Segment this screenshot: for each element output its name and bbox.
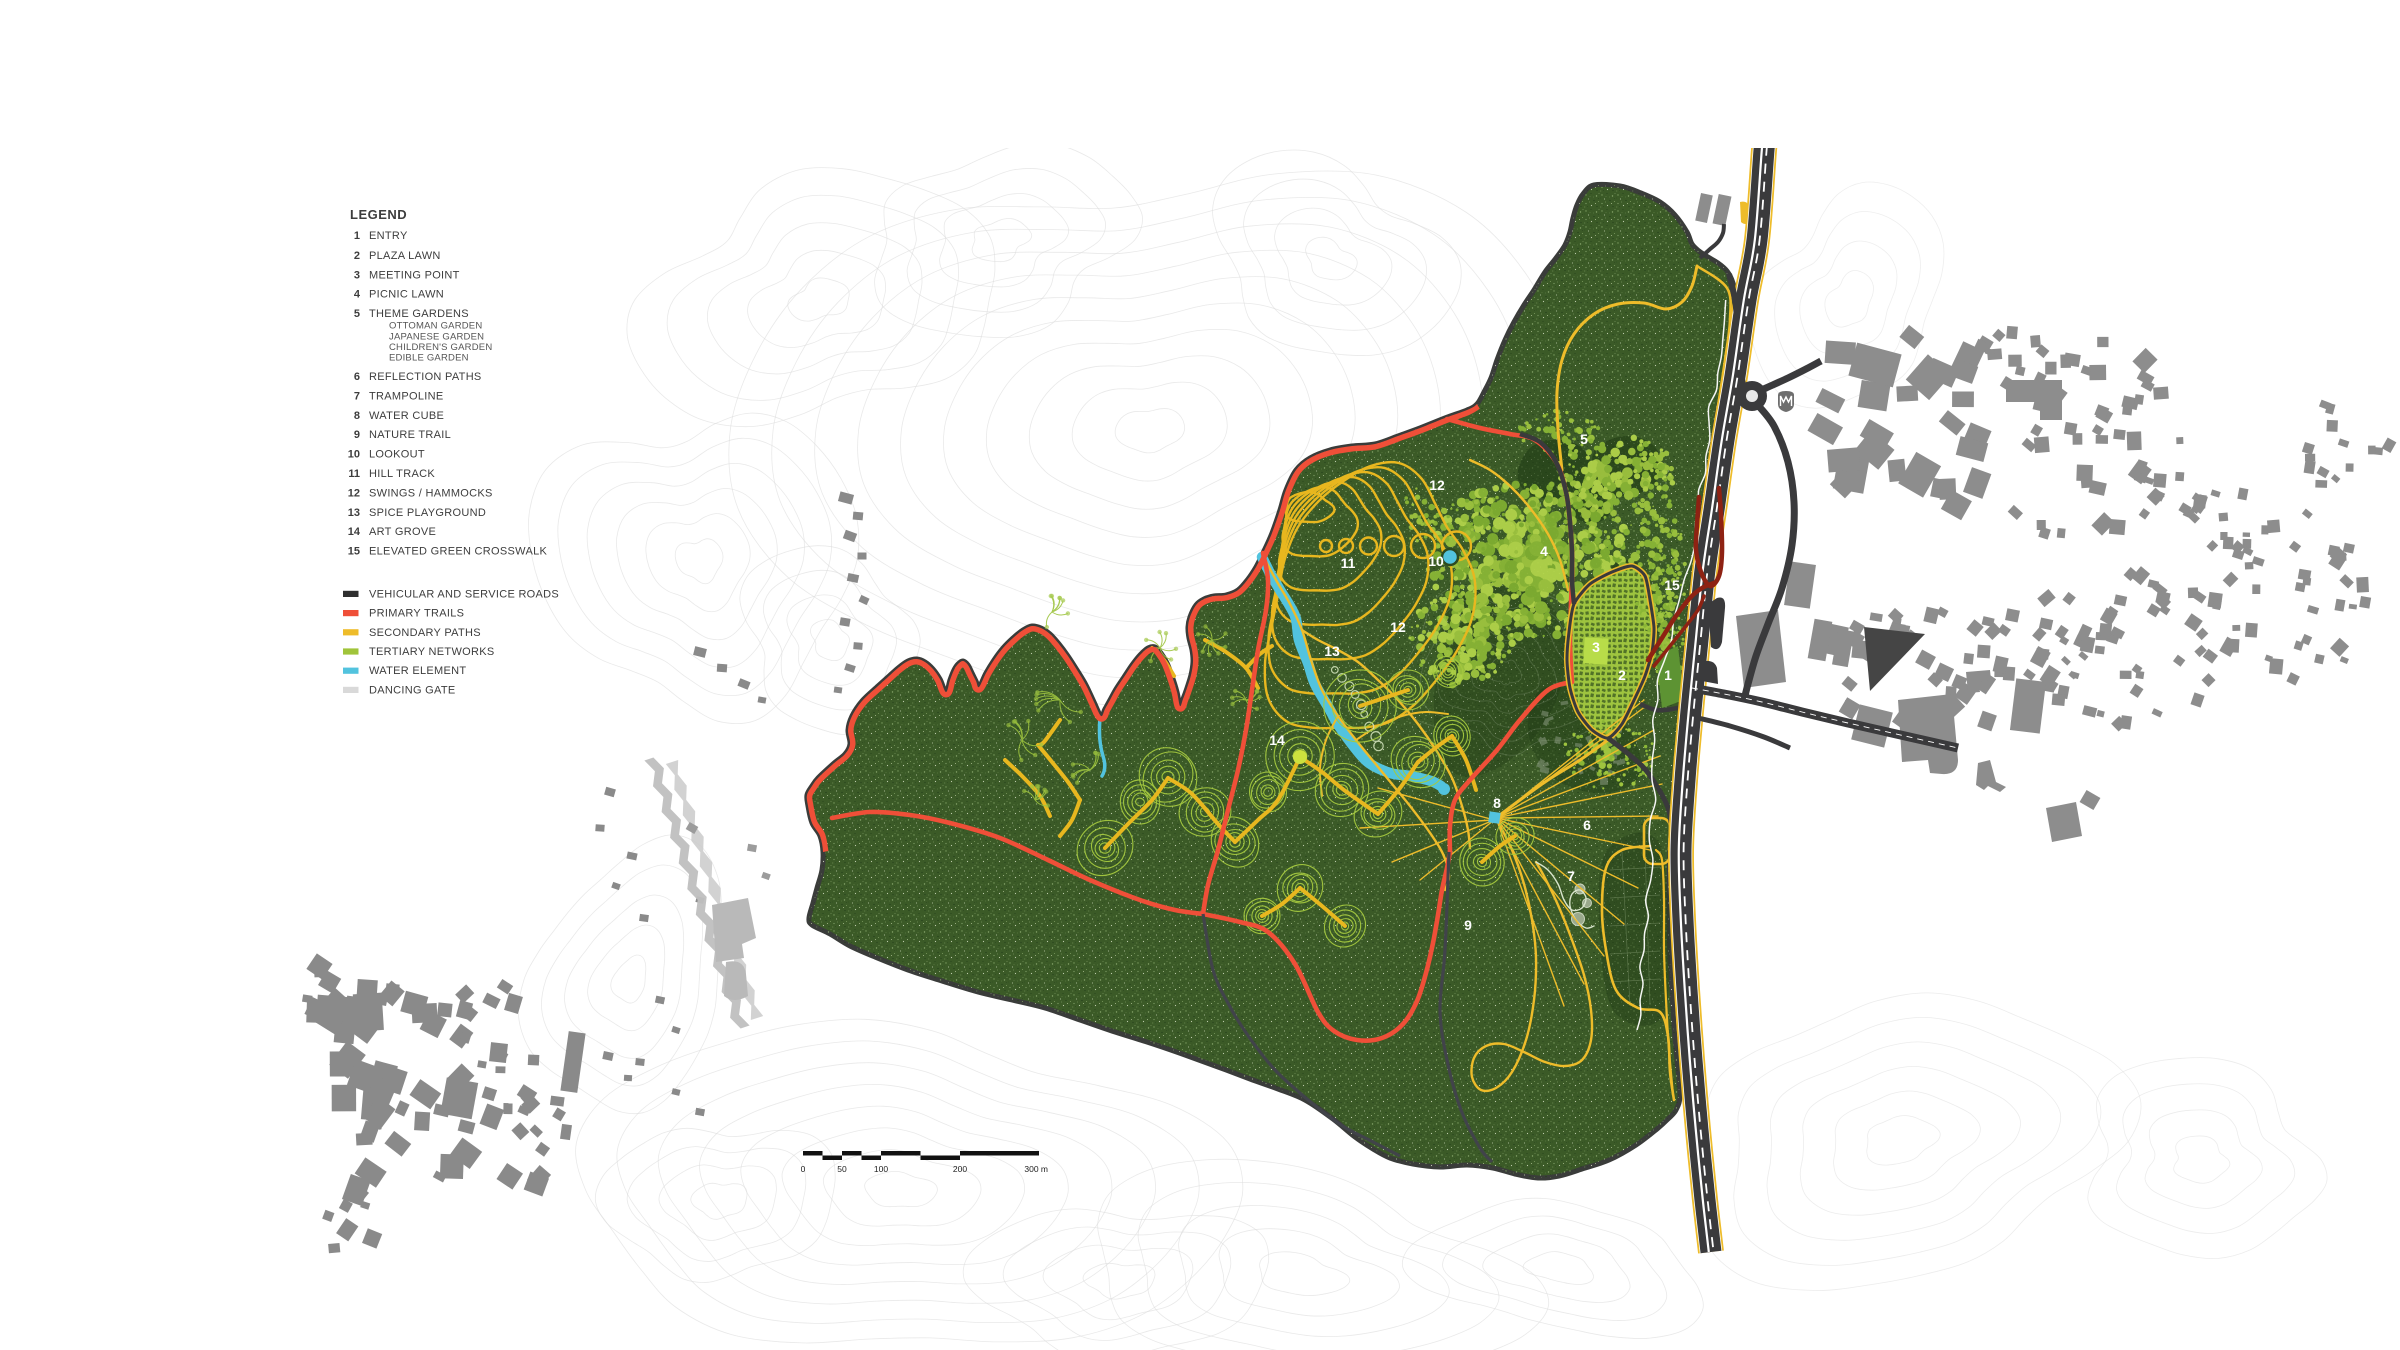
svg-text:9: 9 <box>1464 917 1472 933</box>
svg-text:OTTOMAN GARDEN: OTTOMAN GARDEN <box>389 321 482 332</box>
svg-text:6: 6 <box>354 371 360 383</box>
svg-text:SWINGS / HAMMOCKS: SWINGS / HAMMOCKS <box>369 487 493 499</box>
svg-text:10: 10 <box>348 449 360 461</box>
svg-text:4: 4 <box>354 289 361 301</box>
svg-text:JAPANESE GARDEN: JAPANESE GARDEN <box>389 331 484 342</box>
svg-text:SPICE PLAYGROUND: SPICE PLAYGROUND <box>369 507 486 519</box>
svg-text:1: 1 <box>354 230 360 242</box>
svg-text:LEGEND: LEGEND <box>350 207 407 222</box>
svg-text:1: 1 <box>1664 667 1672 683</box>
svg-text:LOOKOUT: LOOKOUT <box>369 449 425 461</box>
svg-text:50: 50 <box>837 1164 847 1174</box>
svg-text:NATURE TRAIL: NATURE TRAIL <box>369 429 451 441</box>
svg-text:13: 13 <box>1324 643 1340 659</box>
svg-text:EDIBLE GARDEN: EDIBLE GARDEN <box>389 353 469 364</box>
svg-text:ELEVATED GREEN CROSSWALK: ELEVATED GREEN CROSSWALK <box>369 546 548 558</box>
svg-text:7: 7 <box>1567 868 1575 884</box>
svg-text:ENTRY: ENTRY <box>369 230 408 242</box>
svg-text:VEHICULAR AND SERVICE ROADS: VEHICULAR AND SERVICE ROADS <box>369 588 559 600</box>
svg-text:9: 9 <box>354 429 360 441</box>
svg-text:11: 11 <box>1341 555 1356 571</box>
svg-text:TRAMPOLINE: TRAMPOLINE <box>369 390 444 402</box>
svg-text:0: 0 <box>801 1164 806 1174</box>
svg-text:PICNIC LAWN: PICNIC LAWN <box>369 289 444 301</box>
svg-text:2: 2 <box>354 250 360 262</box>
svg-text:THEME GARDENS: THEME GARDENS <box>369 308 469 320</box>
svg-text:200: 200 <box>953 1164 967 1174</box>
svg-text:SECONDARY PATHS: SECONDARY PATHS <box>369 627 481 639</box>
svg-text:12: 12 <box>1390 619 1406 635</box>
svg-text:300 m: 300 m <box>1024 1164 1048 1174</box>
svg-text:14: 14 <box>1269 732 1285 748</box>
svg-text:12: 12 <box>1429 477 1445 493</box>
svg-text:PRIMARY TRAILS: PRIMARY TRAILS <box>369 608 464 620</box>
svg-text:15: 15 <box>1664 577 1680 593</box>
svg-text:100: 100 <box>874 1164 888 1174</box>
svg-text:DANCING GATE: DANCING GATE <box>369 684 456 696</box>
svg-text:WATER CUBE: WATER CUBE <box>369 410 444 422</box>
svg-text:MEETING POINT: MEETING POINT <box>369 269 460 281</box>
svg-text:12: 12 <box>348 487 360 499</box>
svg-text:HILL TRACK: HILL TRACK <box>369 468 435 480</box>
svg-text:TERTIARY NETWORKS: TERTIARY NETWORKS <box>369 646 495 658</box>
svg-text:6: 6 <box>1583 817 1591 833</box>
svg-text:CHILDREN'S GARDEN: CHILDREN'S GARDEN <box>389 342 492 353</box>
svg-text:8: 8 <box>1493 795 1501 811</box>
svg-text:15: 15 <box>348 546 360 558</box>
svg-text:3: 3 <box>1592 639 1600 655</box>
svg-text:2: 2 <box>1618 667 1626 683</box>
svg-text:5: 5 <box>1580 431 1588 447</box>
svg-text:11: 11 <box>348 468 360 480</box>
svg-text:PLAZA LAWN: PLAZA LAWN <box>369 250 441 262</box>
svg-text:7: 7 <box>354 390 360 402</box>
svg-text:REFLECTION PATHS: REFLECTION PATHS <box>369 371 482 383</box>
svg-text:3: 3 <box>354 269 360 281</box>
svg-text:10: 10 <box>1428 553 1444 569</box>
svg-text:4: 4 <box>1540 543 1548 559</box>
svg-text:5: 5 <box>354 308 360 320</box>
svg-text:8: 8 <box>354 410 360 422</box>
svg-text:14: 14 <box>348 526 361 538</box>
svg-text:ART GROVE: ART GROVE <box>369 526 436 538</box>
svg-text:WATER ELEMENT: WATER ELEMENT <box>369 665 466 677</box>
svg-text:13: 13 <box>348 507 360 519</box>
